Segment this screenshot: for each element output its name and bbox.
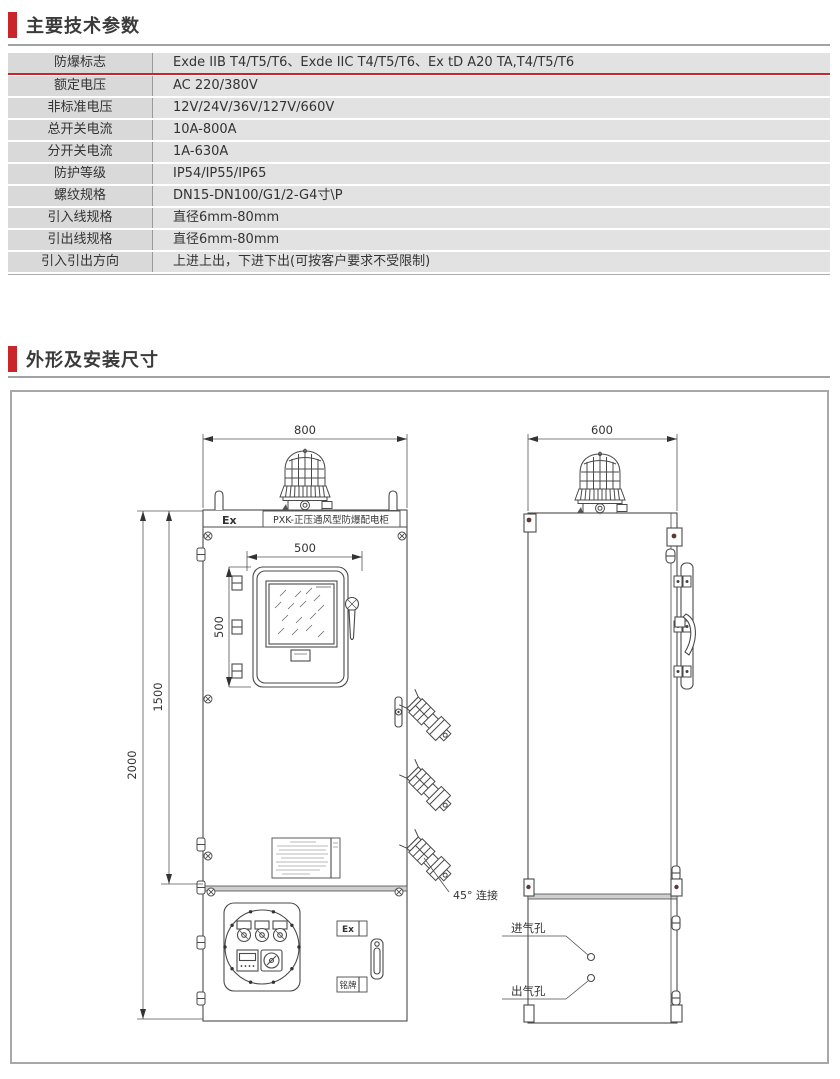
beacon-light-icon	[575, 451, 627, 515]
table-row: 螺纹规格 DN15-DN100/G1/2-G4寸\P	[8, 186, 830, 206]
param-value: AC 220/380V	[153, 76, 830, 96]
table-row: 引入线规格 直径6mm-80mm	[8, 208, 830, 228]
dim-1500: 1500	[151, 682, 165, 711]
dim-2000: 2000	[125, 750, 139, 779]
technical-drawing: Ex PXK-正压通风型防爆配电柜	[12, 392, 827, 1062]
switch-icon	[261, 950, 282, 971]
param-value: Exde IIB T4/T5/T6、Exde IIC T4/T5/T6、Ex t…	[153, 53, 830, 73]
param-value: 直径6mm-80mm	[153, 230, 830, 250]
param-value: 1A-630A	[153, 142, 830, 162]
meter-icon	[237, 950, 258, 971]
param-value: 上进上出，下进下出(可按客户要求不受限制)	[153, 252, 830, 272]
param-label: 引出线规格	[8, 230, 153, 250]
table-row: 分开关电流 1A-630A	[8, 142, 830, 162]
small-plate	[291, 650, 310, 661]
dim-800: 800	[294, 423, 316, 437]
section-title: 主要技术参数	[26, 12, 140, 38]
param-label: 引入线规格	[8, 208, 153, 228]
param-label: 非标准电压	[8, 98, 153, 118]
air-inlet-label: 进气孔	[511, 921, 546, 935]
table-row: 引入引出方向 上进上出，下进下出(可按客户要求不受限制)	[8, 252, 830, 272]
red-accent-bar	[8, 346, 17, 372]
header-rule	[8, 376, 830, 378]
window-glass	[266, 581, 337, 647]
header-rule	[8, 44, 830, 46]
dim-500-width: 500	[294, 541, 316, 555]
connector-note-label: 45° 连接	[453, 889, 498, 902]
table-row: 总开关电流 10A-800A	[8, 120, 830, 140]
table-row: 防爆标志 Exde IIB T4/T5/T6、Exde IIC T4/T5/T6…	[8, 53, 830, 73]
side-view: 进气孔 出气孔	[502, 451, 695, 1023]
param-label: 螺纹规格	[8, 186, 153, 206]
bottom-compartment	[223, 903, 300, 991]
param-value: 10A-800A	[153, 120, 830, 140]
ex-mark-label: Ex	[222, 514, 237, 527]
section-header-dimensions: 外形及安装尺寸	[8, 346, 159, 372]
table-row: 额定电压 AC 220/380V	[8, 76, 830, 96]
nameplate-text-block	[272, 838, 340, 878]
section-title: 外形及安装尺寸	[26, 346, 159, 372]
beacon-light-icon	[280, 448, 332, 512]
dim-500-height: 500	[212, 616, 226, 638]
red-accent-bar	[8, 12, 17, 38]
lifting-lug-icon	[389, 491, 397, 510]
table-row: 非标准电压 12V/24V/36V/127V/660V	[8, 98, 830, 118]
table-row: 防护等级 IP54/IP55/IP65	[8, 164, 830, 184]
param-value: DN15-DN100/G1/2-G4寸\P	[153, 186, 830, 206]
ex-small-label: Ex	[342, 925, 354, 935]
cable-connector-45-icon	[399, 689, 455, 885]
param-label: 防护等级	[8, 164, 153, 184]
dimension-drawing-panel: Ex PXK-正压通风型防爆配电柜	[10, 390, 829, 1064]
cabinet-nameplate-label: PXK-正压通风型防爆配电柜	[273, 514, 389, 526]
front-view: Ex PXK-正压通风型防爆配电柜	[197, 448, 498, 1021]
param-value: 12V/24V/36V/127V/660V	[153, 98, 830, 118]
air-outlet-label: 出气孔	[511, 984, 546, 998]
table-row: 引出线规格 直径6mm-80mm	[8, 230, 830, 250]
lifting-lug-icon	[215, 491, 223, 510]
gauge-icons	[237, 921, 287, 942]
param-value: IP54/IP55/IP65	[153, 164, 830, 184]
param-label: 总开关电流	[8, 120, 153, 140]
table-bottom-border	[8, 274, 830, 275]
param-value: 直径6mm-80mm	[153, 208, 830, 228]
parameters-table: 防爆标志 Exde IIB T4/T5/T6、Exde IIC T4/T5/T6…	[8, 53, 830, 275]
catalog-page: 主要技术参数 防爆标志 Exde IIB T4/T5/T6、Exde IIC T…	[0, 0, 840, 1079]
section-header-parameters: 主要技术参数	[8, 12, 140, 38]
param-label: 分开关电流	[8, 142, 153, 162]
param-label: 防爆标志	[8, 53, 153, 73]
dim-600: 600	[591, 423, 613, 437]
param-label: 引入引出方向	[8, 252, 153, 272]
nameplate-small-label: 铭牌	[339, 980, 357, 991]
red-divider-line	[8, 73, 830, 75]
param-label: 额定电压	[8, 76, 153, 96]
